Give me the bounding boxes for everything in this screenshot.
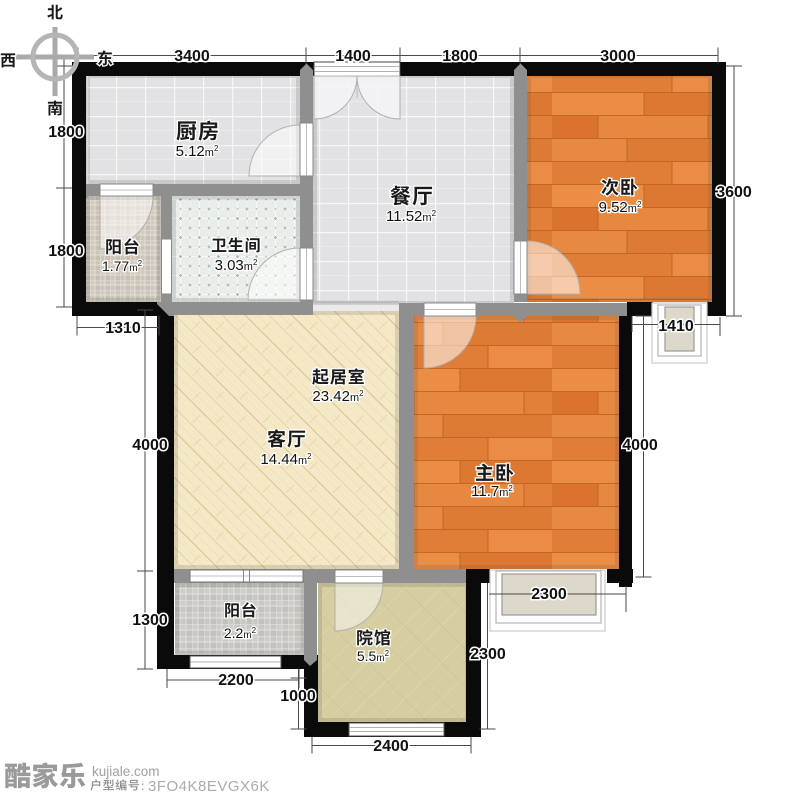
svg-text:1410: 1410 — [658, 318, 694, 335]
svg-text:2400: 2400 — [373, 738, 409, 755]
svg-text:3000: 3000 — [600, 48, 636, 65]
svg-text:3400: 3400 — [174, 48, 210, 65]
svg-text:1310: 1310 — [105, 320, 141, 337]
svg-text:1400: 1400 — [335, 48, 371, 65]
svg-text:1000: 1000 — [280, 688, 316, 705]
svg-text:kujiale.com: kujiale.com — [92, 764, 160, 779]
svg-text:3600: 3600 — [716, 184, 752, 201]
svg-text:2200: 2200 — [218, 672, 254, 689]
svg-text:1800: 1800 — [48, 124, 84, 141]
svg-text:2300: 2300 — [470, 646, 506, 663]
svg-text:1300: 1300 — [132, 612, 168, 629]
svg-text:1800: 1800 — [442, 48, 478, 65]
svg-text:4000: 4000 — [132, 437, 168, 454]
svg-text::: : — [141, 779, 144, 793]
svg-text:1800: 1800 — [48, 243, 84, 260]
svg-text:2300: 2300 — [531, 586, 567, 603]
svg-text:3FO4K8EVGX6K: 3FO4K8EVGX6K — [148, 778, 270, 795]
svg-text:4000: 4000 — [622, 437, 658, 454]
